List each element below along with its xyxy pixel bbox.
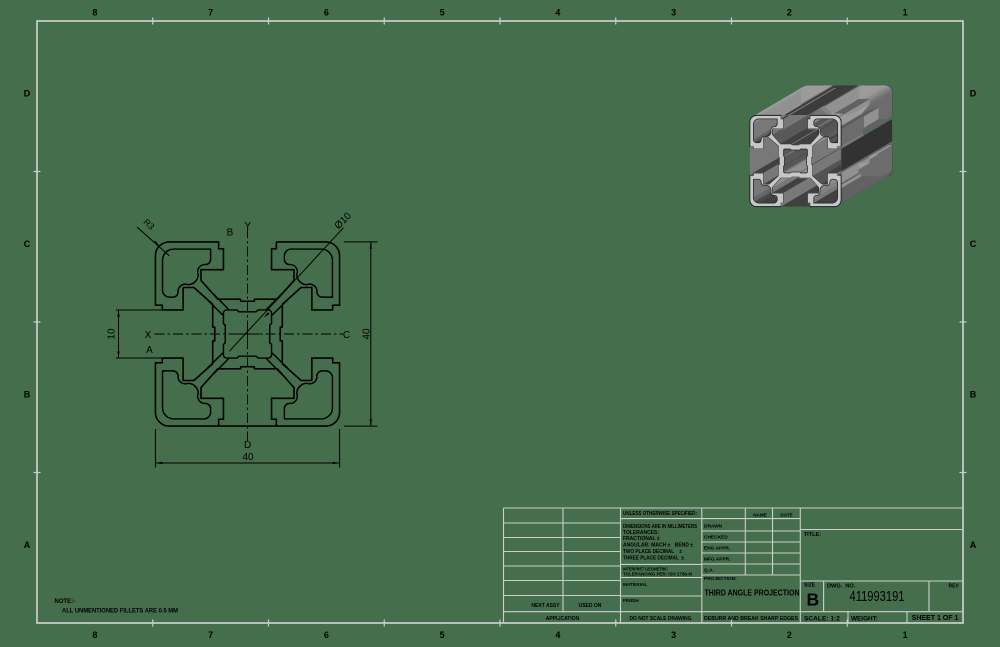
svg-text:MATERIAL: MATERIAL [623, 582, 647, 588]
svg-text:5: 5 [440, 8, 445, 18]
svg-text:Y: Y [244, 221, 251, 232]
svg-text:B: B [807, 590, 820, 610]
svg-text:WEIGHT:: WEIGHT: [851, 616, 878, 623]
svg-text:A: A [146, 345, 153, 356]
svg-text:SIZE: SIZE [804, 583, 816, 589]
svg-text:4: 4 [555, 8, 560, 18]
svg-text:B: B [24, 389, 31, 399]
svg-text:TOLERANCING PER: ISO 2768-M: TOLERANCING PER: ISO 2768-M [623, 572, 692, 577]
svg-text:8: 8 [92, 8, 97, 18]
svg-text:40: 40 [362, 328, 373, 340]
svg-text:D: D [24, 89, 31, 99]
svg-text:FRACTIONAL ±: FRACTIONAL ± [623, 536, 660, 542]
svg-text:UNLESS OTHERWISE SPECIFIED:: UNLESS OTHERWISE SPECIFIED: [623, 511, 697, 517]
svg-text:USED ON: USED ON [579, 603, 602, 609]
svg-text:APPLICATION: APPLICATION [546, 616, 580, 622]
svg-text:MFG APPR.: MFG APPR. [704, 557, 730, 563]
svg-text:2: 2 [787, 8, 792, 18]
svg-text:10: 10 [107, 328, 118, 340]
svg-text:40: 40 [242, 452, 254, 463]
svg-text:FINISH: FINISH [623, 598, 639, 604]
svg-text:TWO PLACE DECIMAL ±: TWO PLACE DECIMAL ± [623, 549, 682, 555]
svg-text:TITLE:: TITLE: [804, 532, 822, 538]
svg-text:3: 3 [671, 630, 676, 640]
svg-text:ENG APPR.: ENG APPR. [704, 546, 730, 552]
svg-text:5: 5 [440, 630, 445, 640]
svg-text:DEBURR AND BREAK SHARP EDGES: DEBURR AND BREAK SHARP EDGES [704, 616, 799, 622]
svg-text:DRAWN: DRAWN [704, 524, 723, 530]
svg-text:ANGULAR: MACH ± BEND ±: ANGULAR: MACH ± BEND ± [623, 543, 693, 549]
svg-text:PROJECTION:: PROJECTION: [704, 576, 737, 582]
svg-text:C: C [343, 330, 350, 341]
svg-text:X: X [145, 330, 152, 341]
svg-text:NAME: NAME [753, 513, 767, 518]
svg-text:411993191: 411993191 [850, 589, 905, 605]
svg-text:7: 7 [208, 8, 213, 18]
svg-text:1: 1 [903, 8, 908, 18]
svg-text:8: 8 [92, 630, 97, 640]
svg-text:A: A [970, 540, 977, 550]
svg-text:7: 7 [208, 630, 213, 640]
svg-text:DO NOT SCALE DRAWING: DO NOT SCALE DRAWING [630, 616, 692, 622]
svg-text:NOTE:-: NOTE:- [55, 599, 76, 605]
svg-text:SHEET 1 OF 1: SHEET 1 OF 1 [912, 615, 959, 622]
svg-text:Q.A.: Q.A. [704, 568, 714, 574]
svg-text:DATE: DATE [780, 513, 792, 518]
svg-text:B: B [227, 228, 234, 239]
svg-text:CHECKED: CHECKED [704, 535, 728, 541]
svg-text:D: D [244, 440, 251, 451]
svg-text:C: C [24, 239, 31, 249]
svg-text:NEXT ASSY: NEXT ASSY [531, 603, 560, 609]
svg-text:SCALE: 1:2: SCALE: 1:2 [804, 616, 840, 623]
svg-text:C: C [970, 239, 977, 249]
svg-text:THIRD ANGLE PROJECTION: THIRD ANGLE PROJECTION [705, 589, 800, 598]
svg-text:1: 1 [903, 630, 908, 640]
svg-text:A: A [24, 540, 31, 550]
svg-text:4: 4 [555, 630, 560, 640]
svg-text:6: 6 [324, 630, 329, 640]
svg-text:ALL UNMENTIONED FILLETS ARE 0.: ALL UNMENTIONED FILLETS ARE 0.5 MM [62, 609, 178, 615]
svg-text:THREE PLACE DECIMAL ±: THREE PLACE DECIMAL ± [623, 556, 684, 562]
svg-text:2: 2 [787, 630, 792, 640]
svg-text:3: 3 [671, 8, 676, 18]
svg-text:D: D [970, 89, 977, 99]
svg-text:B: B [970, 389, 977, 399]
svg-text:REV: REV [949, 584, 960, 590]
svg-text:6: 6 [324, 8, 329, 18]
